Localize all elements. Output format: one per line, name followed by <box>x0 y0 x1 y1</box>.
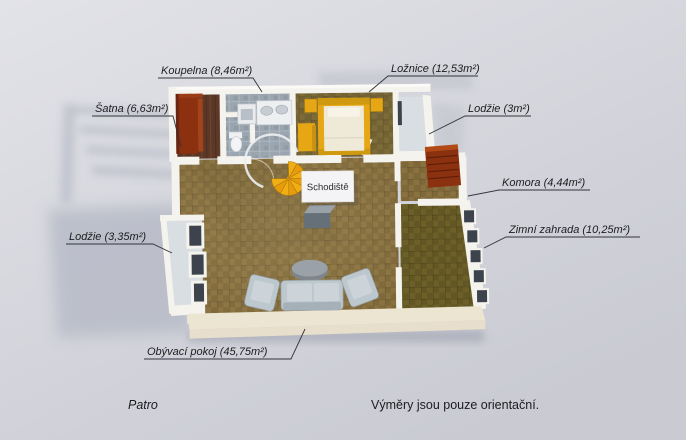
label-obyvaci-pokoj: Obývací pokoj (45,75m²) <box>147 346 268 358</box>
schodiste-label: Schodiště <box>307 182 349 194</box>
wardrobe-satna <box>176 94 204 154</box>
floorplan-canvas: Schodiště Koupelna (8,46m²) Ložnice (12,… <box>0 0 686 440</box>
note-caption: Výměry jsou pouze orientační. <box>371 398 539 412</box>
vanity-double-sink <box>257 100 292 124</box>
wall-hall-c <box>273 155 341 164</box>
wall-living-komora-b <box>395 203 402 247</box>
shelf-komora <box>425 144 461 188</box>
label-lodzie-left: Lodžie (3,35m²) <box>69 231 146 243</box>
schodiste-tag: Schodiště <box>302 171 358 207</box>
nightstand-left <box>305 99 317 112</box>
wall-komora-zimni <box>418 198 464 206</box>
balcony-left-rail-top <box>160 215 204 222</box>
lodzie-top-glass <box>398 101 402 125</box>
wall-hall-a <box>171 157 199 165</box>
label-zimni-zahrada: Zimní zahrada (10,25m²) <box>508 224 630 236</box>
label-koupelna: Koupelna (8,46m²) <box>161 65 252 77</box>
dresser-loznice <box>298 123 316 151</box>
wall-hall-d <box>363 154 397 162</box>
floorplan-screenshot: Schodiště Koupelna (8,46m²) Ložnice (12,… <box>0 0 686 440</box>
bed <box>318 98 371 156</box>
label-lodzie-top: Lodžie (3m²) <box>468 103 530 115</box>
shadow-right <box>432 102 466 152</box>
wall-satna-koupelna <box>220 93 227 157</box>
floor-caption: Patro <box>128 398 158 412</box>
washing-machine <box>238 104 256 124</box>
sofa <box>281 280 343 311</box>
wall-exterior-left-mid <box>171 160 180 218</box>
label-komora: Komora (4,44m²) <box>502 177 585 189</box>
label-loznice: Ložnice (12,53m²) <box>391 63 480 75</box>
wall-living-komora-a <box>394 159 400 181</box>
nightstand-right <box>371 98 383 111</box>
label-satna: Šatna (6,63m²) <box>95 102 169 115</box>
